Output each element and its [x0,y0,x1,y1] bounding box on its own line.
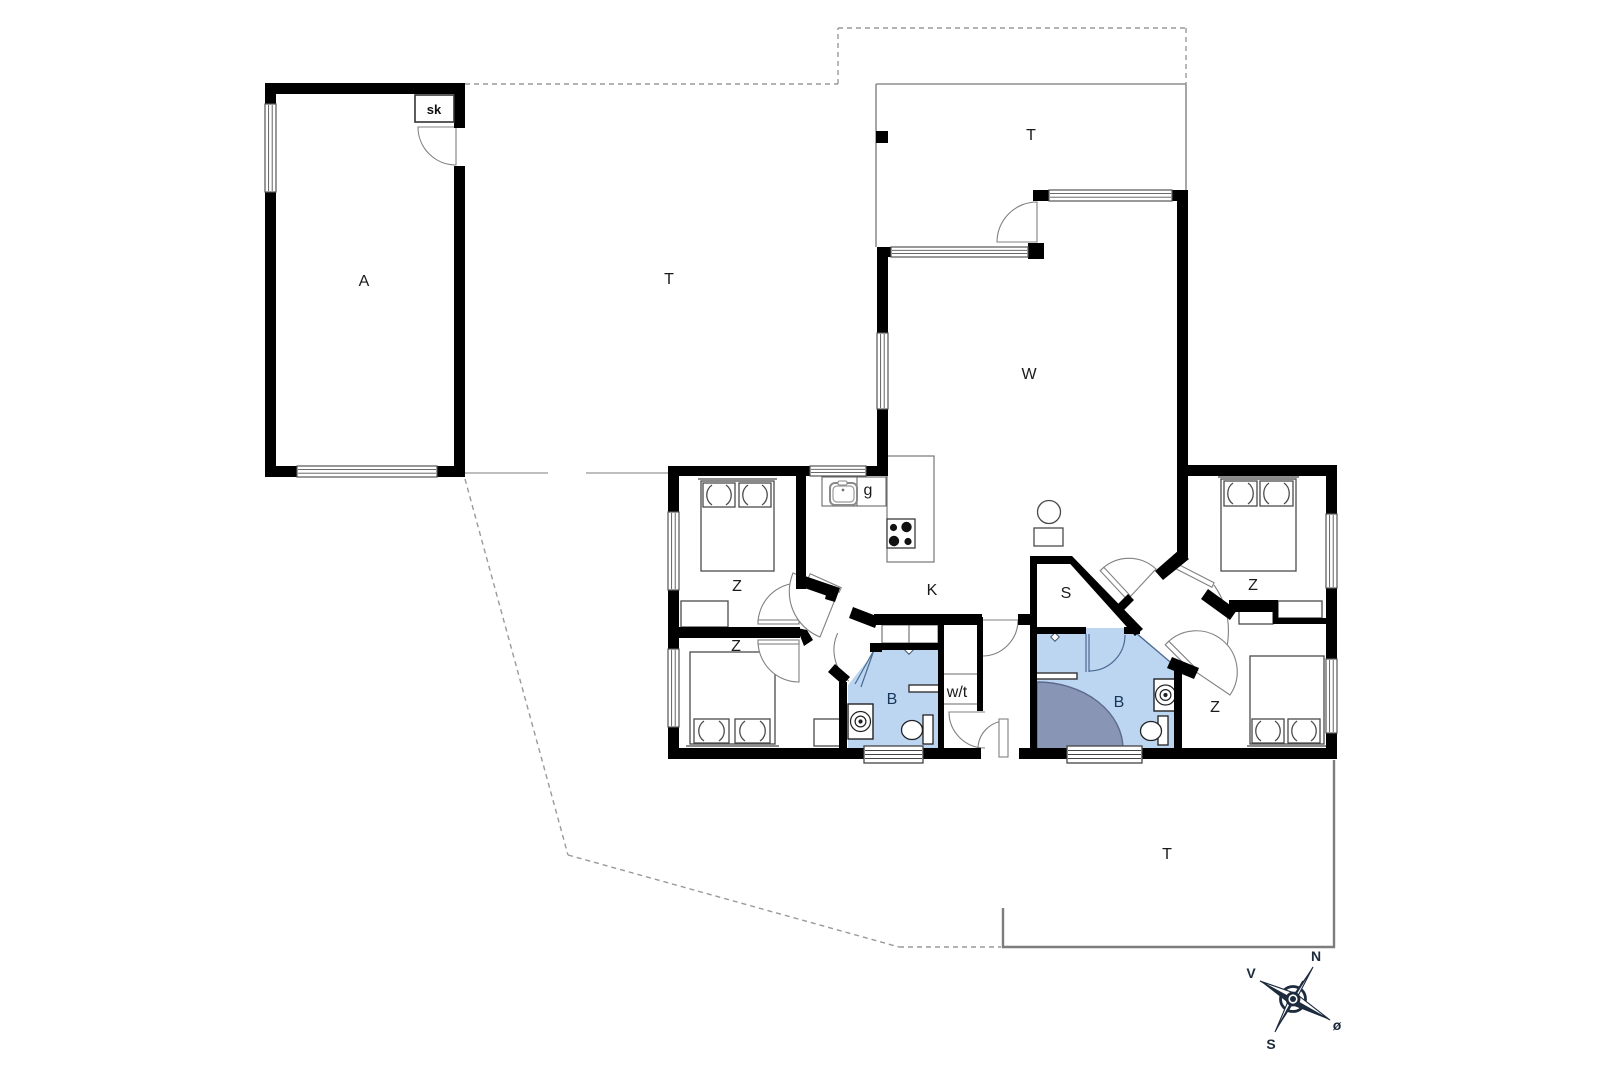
svg-text:Z: Z [1248,577,1258,594]
svg-text:T: T [1026,127,1036,144]
svg-text:Z: Z [731,638,741,655]
svg-text:w/t: w/t [946,684,968,701]
svg-text:S: S [1061,585,1072,602]
svg-text:T: T [1162,846,1172,863]
svg-text:W: W [1021,366,1037,383]
svg-text:A: A [359,273,370,290]
svg-text:K: K [927,582,938,599]
svg-text:Z: Z [732,578,742,595]
svg-text:Z: Z [1210,699,1220,716]
svg-text:ø: ø [1333,1017,1342,1033]
svg-text:g: g [864,482,873,499]
svg-text:V: V [1246,965,1256,981]
svg-text:B: B [887,691,898,708]
svg-text:N: N [1311,948,1321,964]
svg-text:S: S [1266,1036,1275,1052]
svg-text:T: T [664,271,674,288]
svg-text:B: B [1114,694,1125,711]
svg-text:sk: sk [427,102,442,117]
